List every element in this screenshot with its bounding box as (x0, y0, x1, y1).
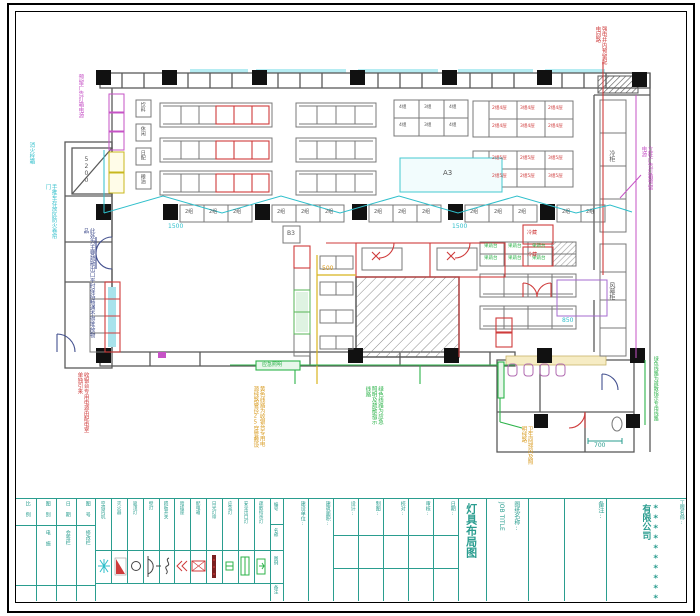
downlight-symbol (132, 562, 141, 571)
titleblock-line (76, 498, 77, 601)
titleblock-line (270, 524, 283, 525)
titleblock-line (16, 498, 686, 499)
titleblock-line (270, 498, 271, 601)
tb-c-label: 校对: (399, 501, 405, 541)
titleblock-line (408, 498, 409, 601)
titleblock-line (358, 498, 359, 601)
legend-item-name: 吸顶灯 (132, 501, 137, 547)
tb-a-label: 图 号 (84, 501, 90, 523)
legend-item-name: 暗插座 (179, 501, 184, 547)
wall-lamp-symbol (148, 556, 161, 577)
titleblock-line (383, 498, 384, 601)
tb-a-label: 比 例 (24, 501, 30, 523)
tb-c-label: 日期: (449, 501, 455, 541)
socket-symbol (177, 561, 187, 571)
legend-item-name: 壁灯 (148, 501, 153, 547)
titleblock-line (95, 583, 283, 584)
legend-item-name: 跷板开关 (163, 501, 168, 547)
legend-header: 图例 (273, 556, 278, 580)
titleblock-line (486, 498, 487, 601)
titleblock-line (333, 568, 458, 569)
tb-c-label: 制图: (374, 501, 380, 541)
titleblock-line (528, 498, 529, 601)
legend-item-name: 灭火器 (116, 501, 121, 547)
job-title-label: 图纸名称: (512, 501, 519, 543)
titleblock-line (333, 498, 334, 601)
job-title-en: JOB TITLE (498, 502, 505, 531)
legend-symbols (96, 551, 270, 582)
tb-c-label: 设计: (349, 501, 355, 541)
tb-c-label: 建设单位: (299, 501, 305, 541)
tb-c-label: 建筑面积: (324, 501, 330, 541)
tb-a-value: 会签栏 (64, 530, 70, 580)
company-name: **********有限公司 (640, 504, 661, 598)
light-strip-symbol (212, 555, 216, 578)
legend-header: 编号 (273, 502, 278, 522)
titleblock-line (56, 498, 57, 601)
tb-a-value: 电 施 (44, 530, 50, 580)
drawing-sheet: 预留广告灯箱电源 消火栓箱 手推车存放区防火卷帘门 此处为主要疏散出口平时保持畅… (0, 0, 700, 616)
legend-item-name: 疏散指示灯 (258, 501, 263, 547)
title-block: 比 例 图 别 日 期 图 号 电 施 会签栏 修改栏 编号 名称 图例 备注 … (0, 0, 700, 616)
legend-item-name: 应急灯 (227, 501, 232, 547)
titleblock-line (283, 498, 284, 601)
remark-label: 备注: (596, 501, 603, 529)
direction-sign-symbol (257, 559, 265, 574)
legend-item-name: 安全出口灯 (243, 501, 248, 547)
drawing-title: 灯具布局图 (464, 503, 477, 593)
titleblock-line (36, 498, 37, 601)
legend-header: 名称 (273, 528, 278, 548)
emergency-lamp-symbol (226, 562, 233, 570)
fire-extinguisher-symbol (115, 558, 126, 575)
tb-c-label: 审核: (424, 501, 430, 541)
legend-item-name: 配电箱 (195, 501, 200, 547)
titleblock-line (95, 498, 96, 601)
titleblock-line (433, 498, 434, 601)
ac-unit-symbol (98, 559, 110, 573)
exit-sign-symbol (241, 557, 249, 575)
legend-item-name: 空调内机 (100, 501, 105, 547)
switch-symbol (166, 558, 169, 574)
project-name-label: 工程名称: (678, 500, 684, 530)
titleblock-line (458, 498, 459, 601)
legend-item-name: 日光灯带 (211, 501, 216, 547)
titleblock-line (308, 498, 309, 601)
tb-a-label: 日 期 (64, 501, 70, 523)
legend-header: 备注 (273, 585, 278, 599)
titleblock-line (606, 498, 607, 601)
tb-a-label: 图 别 (44, 501, 50, 523)
tb-a-value: 修改栏 (84, 530, 90, 580)
distribution-box-symbol (192, 561, 205, 571)
titleblock-line (564, 498, 565, 601)
